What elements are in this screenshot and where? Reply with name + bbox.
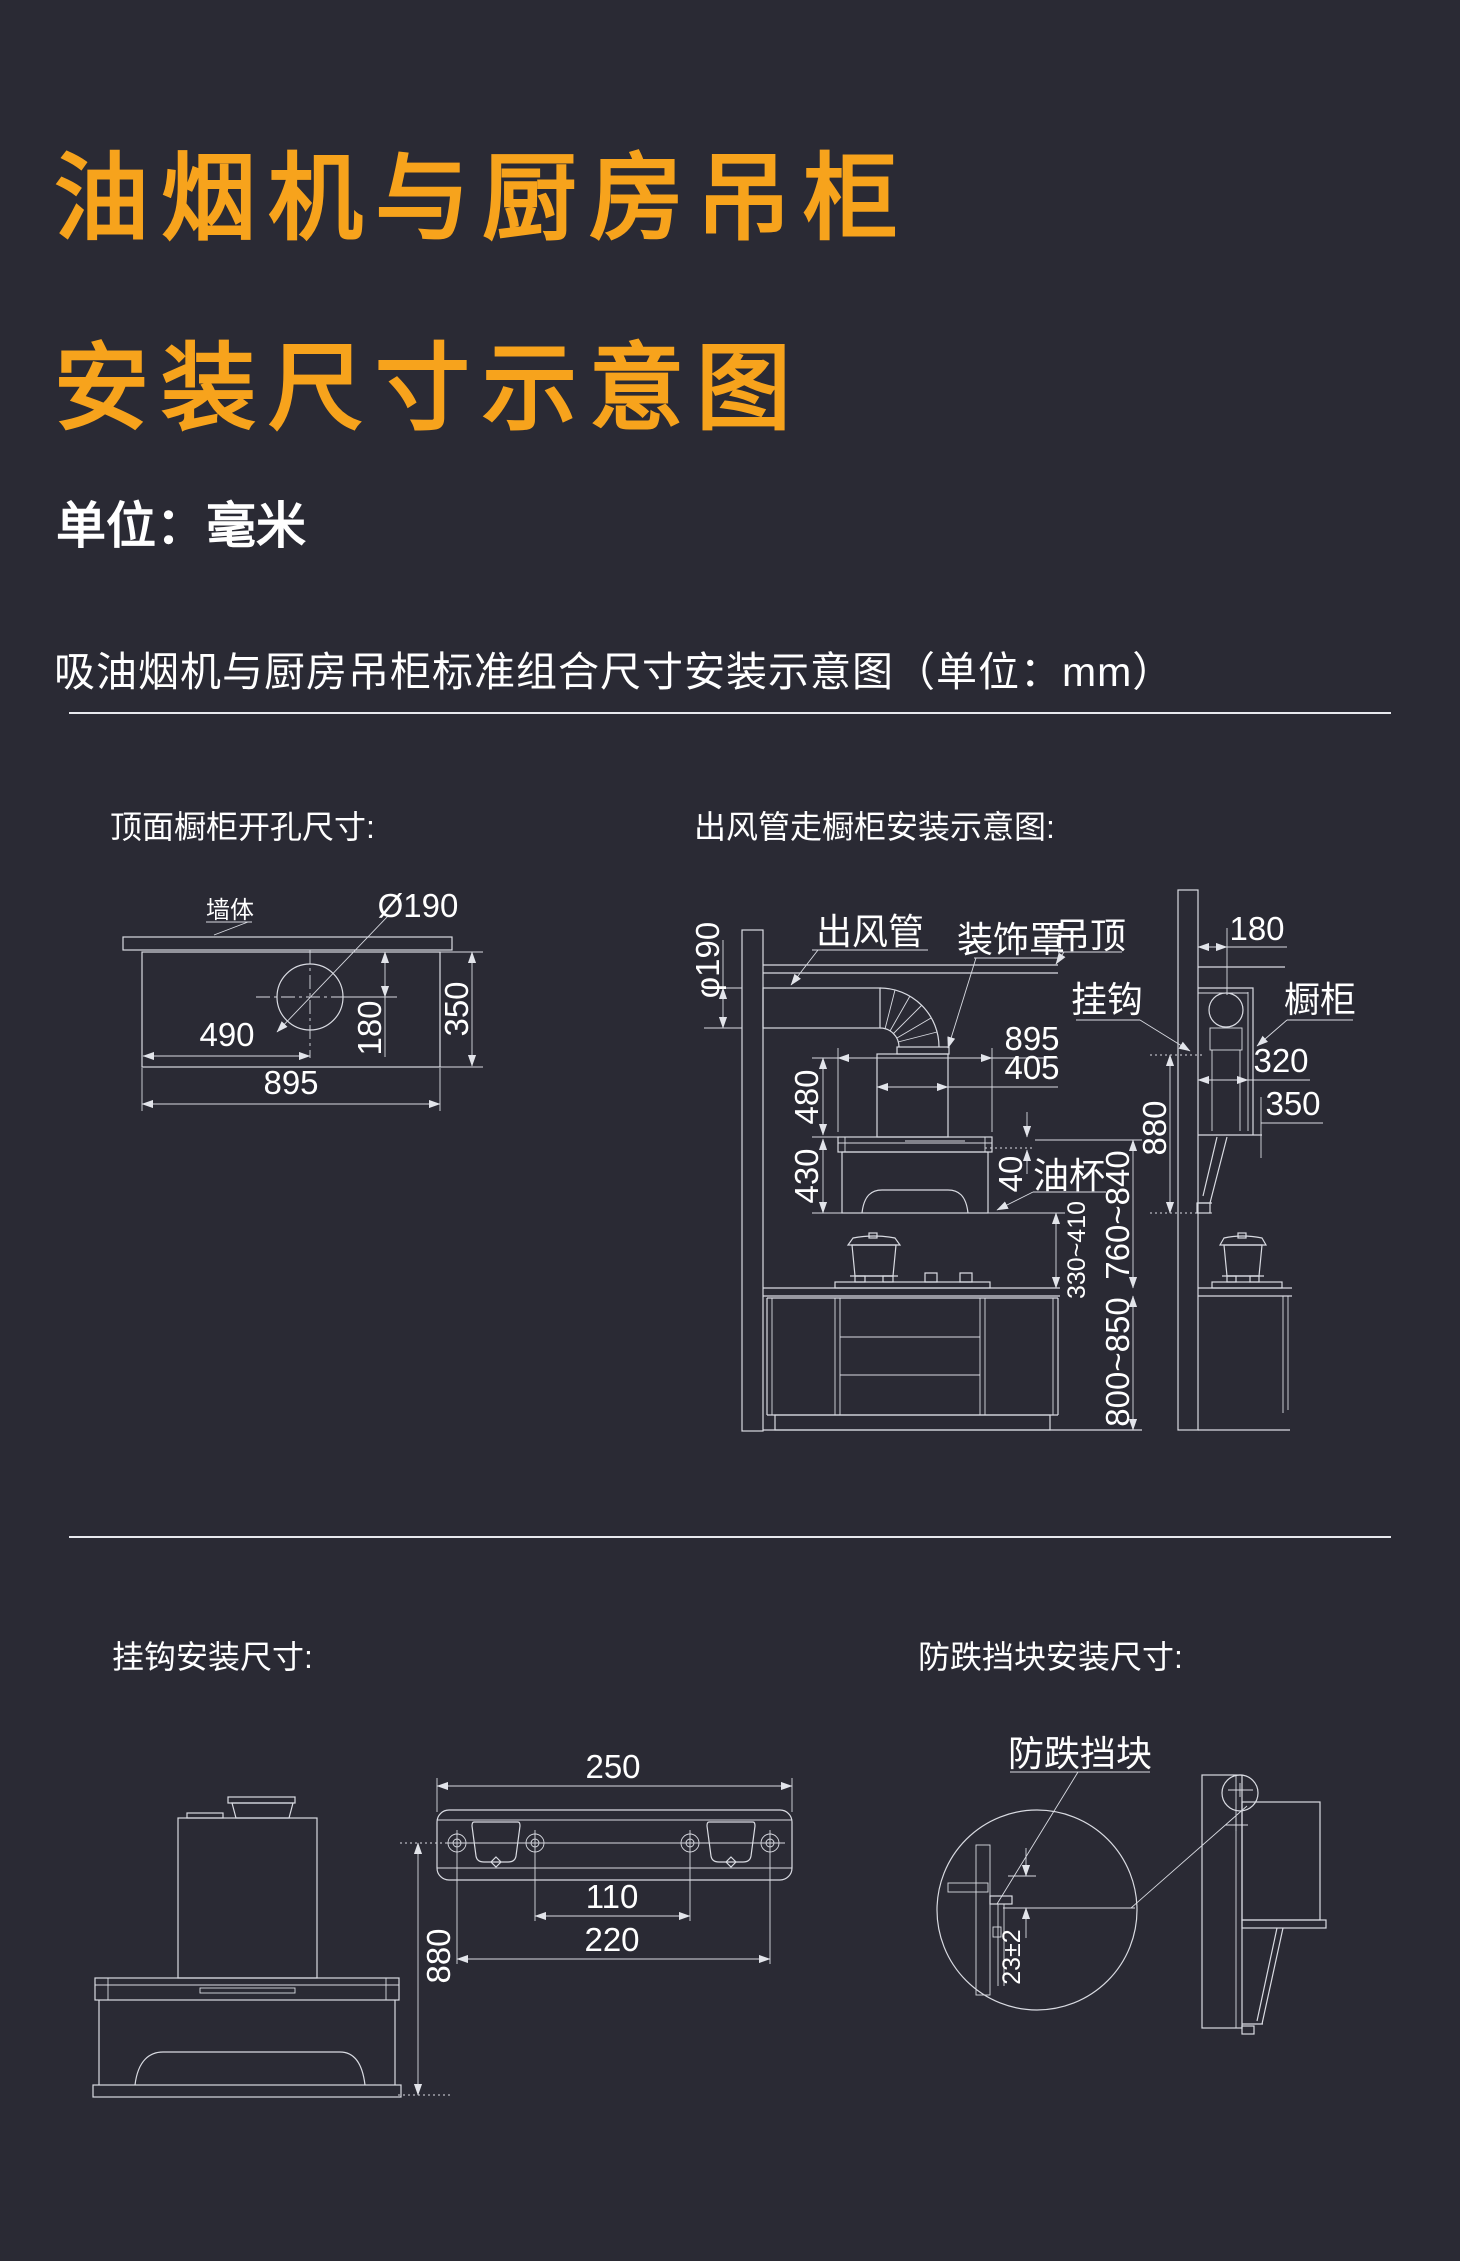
cover-label: 装饰罩 bbox=[957, 919, 1065, 960]
svg-text:250: 250 bbox=[585, 1748, 640, 1785]
dim-895: 895 bbox=[142, 1064, 440, 1111]
hook-plate bbox=[437, 1810, 792, 1880]
pot-front bbox=[848, 1233, 900, 1282]
wall-cabinet-side bbox=[1198, 988, 1262, 1135]
hood-front bbox=[93, 1797, 401, 2097]
svg-text:405: 405 bbox=[1004, 1049, 1059, 1086]
dim-40: 40 bbox=[992, 1112, 1029, 1192]
oilcup-label: 油杯 bbox=[1033, 1155, 1105, 1196]
detail-circle bbox=[937, 1810, 1137, 2010]
hood-side bbox=[1197, 1137, 1227, 1213]
dim-760-840: 760~840 bbox=[1099, 1140, 1136, 1288]
svg-text:40: 40 bbox=[992, 1156, 1029, 1193]
svg-text:895: 895 bbox=[263, 1064, 318, 1101]
dim-330-410: 330~410 bbox=[985, 1201, 1091, 1299]
svg-text:800~850: 800~850 bbox=[1099, 1297, 1136, 1426]
decor-cover bbox=[877, 1054, 948, 1137]
base-cabinet-front bbox=[763, 1298, 1142, 1430]
dim-350: 350 bbox=[427, 952, 483, 1067]
svg-text:330~410: 330~410 bbox=[1063, 1201, 1091, 1299]
dim-23: 23±2 bbox=[998, 1929, 1026, 1984]
cabinet-callout: 橱柜 bbox=[1257, 979, 1356, 1046]
svg-text:430: 430 bbox=[788, 1148, 825, 1203]
svg-text:320: 320 bbox=[1253, 1042, 1308, 1079]
dim-880-hook: 880 bbox=[398, 1843, 457, 2095]
burner-front bbox=[925, 1273, 972, 1282]
dim-phi190: φ190 bbox=[689, 922, 742, 1028]
dim-180: 180 bbox=[343, 952, 397, 1057]
svg-text:φ190: φ190 bbox=[689, 922, 726, 998]
hook-label: 挂钩 bbox=[1071, 979, 1143, 1020]
dim-250: 250 bbox=[437, 1748, 792, 1812]
block-label: 防跌挡块 bbox=[1008, 1733, 1152, 1774]
detail-content: 23±2 bbox=[948, 1845, 1135, 1995]
poster-page: 油烟机与厨房吊柜 安装尺寸示意图 单位：毫米 吸油烟机与厨房吊柜标准组合尺寸安装… bbox=[0, 0, 1460, 2261]
hook-view-drawing: 880 bbox=[93, 1748, 792, 2097]
dim-350-side: 350 bbox=[1261, 1085, 1323, 1158]
block-view-drawing: 防跌挡块 23±2 bbox=[937, 1733, 1326, 2034]
duct-view-drawing: 出风管 装饰罩 吊顶 φ190 bbox=[689, 890, 1356, 1431]
wall-label: 墙体 bbox=[206, 897, 254, 924]
svg-text:880: 880 bbox=[1136, 1100, 1173, 1155]
svg-text:480: 480 bbox=[788, 1069, 825, 1124]
dim-110: 110 bbox=[535, 1856, 690, 1921]
top-view-drawing: 墙体 Ø190 180 350 490 bbox=[123, 887, 483, 1111]
svg-text:350: 350 bbox=[438, 981, 475, 1036]
installation-drawing: 墙体 Ø190 180 350 490 bbox=[0, 0, 1460, 2261]
block-callout: 防跌挡块 bbox=[997, 1733, 1152, 1904]
block-side-view bbox=[1131, 1775, 1326, 2034]
hood-top-band bbox=[838, 1137, 992, 1152]
svg-text:490: 490 bbox=[199, 1016, 254, 1053]
hook-slots bbox=[472, 1822, 755, 1867]
dim-405: 405 bbox=[877, 1049, 1060, 1087]
svg-text:220: 220 bbox=[584, 1921, 639, 1958]
svg-text:180: 180 bbox=[351, 1000, 388, 1055]
dim-430: 430 bbox=[788, 1139, 842, 1213]
dim-800-850: 800~850 bbox=[1099, 1296, 1136, 1430]
svg-text:180: 180 bbox=[1229, 910, 1284, 947]
duct-label: 出风管 bbox=[816, 911, 924, 952]
hook-callout: 挂钩 bbox=[1071, 979, 1190, 1051]
dim-480: 480 bbox=[788, 1058, 838, 1137]
svg-text:760~840: 760~840 bbox=[1099, 1150, 1136, 1279]
cabinet-label: 橱柜 bbox=[1284, 979, 1356, 1020]
pot-side bbox=[1212, 1233, 1282, 1288]
dim-180-side: 180 bbox=[1198, 910, 1287, 995]
svg-text:110: 110 bbox=[586, 1878, 639, 1915]
dim-880-side: 880 bbox=[1136, 1055, 1212, 1213]
hole-diameter-label: Ø190 bbox=[378, 887, 459, 924]
svg-text:880: 880 bbox=[420, 1928, 457, 1983]
wall-callout: 墙体 bbox=[206, 897, 254, 935]
duct-callout: 出风管 bbox=[791, 911, 928, 985]
dim-490: 490 bbox=[143, 1016, 310, 1056]
dim-320: 320 bbox=[1198, 1042, 1310, 1080]
svg-text:350: 350 bbox=[1265, 1085, 1320, 1122]
ceiling-label: 吊顶 bbox=[1054, 915, 1126, 956]
